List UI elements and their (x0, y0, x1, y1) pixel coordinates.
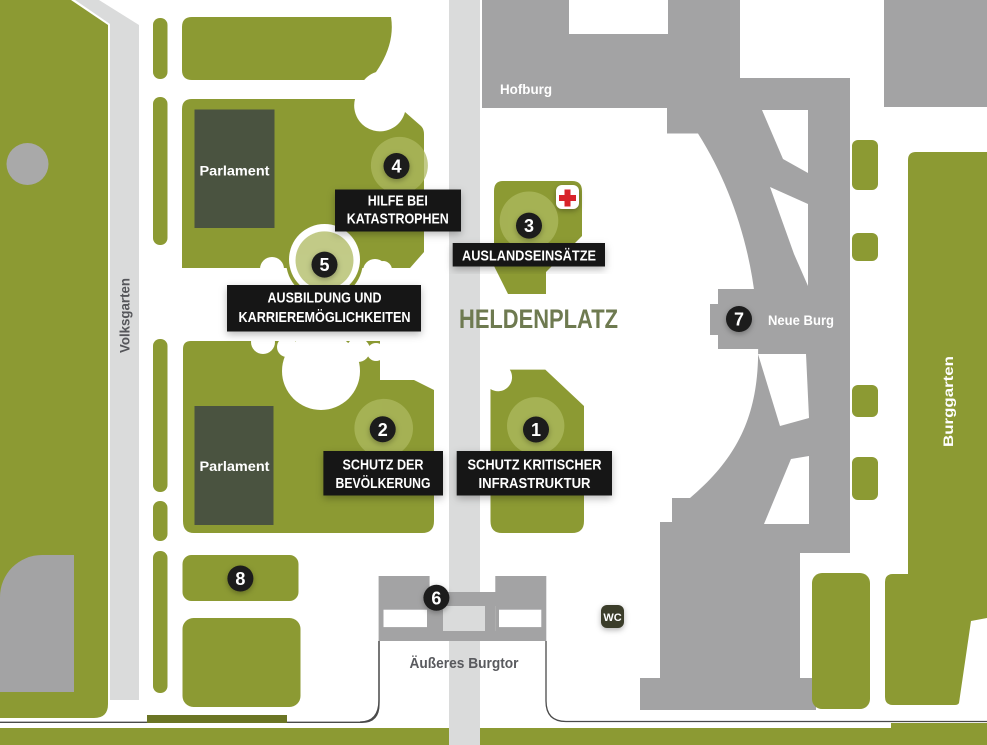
svg-text:4: 4 (391, 157, 401, 177)
svg-text:3: 3 (524, 216, 534, 236)
svg-text:HILFE BEI: HILFE BEI (368, 194, 428, 210)
svg-text:SCHUTZ KRITISCHER: SCHUTZ KRITISCHER (468, 458, 602, 474)
svg-text:INFRASTRUKTUR: INFRASTRUKTUR (479, 476, 591, 492)
svg-text:2: 2 (378, 420, 388, 440)
svg-text:KARRIEREMÖGLICHKEITEN: KARRIEREMÖGLICHKEITEN (239, 309, 411, 326)
svg-text:8: 8 (235, 569, 245, 589)
svg-text:Volksgarten: Volksgarten (118, 278, 133, 353)
svg-text:KATASTROPHEN: KATASTROPHEN (347, 212, 449, 228)
svg-text:Parlament: Parlament (200, 164, 271, 179)
svg-text:Burggarten: Burggarten (941, 356, 956, 447)
svg-text:Hofburg: Hofburg (500, 81, 552, 97)
svg-text:Neue Burg: Neue Burg (768, 312, 834, 328)
svg-text:BEVÖLKERUNG: BEVÖLKERUNG (336, 475, 431, 492)
svg-text:HELDENPLATZ: HELDENPLATZ (459, 304, 618, 334)
svg-text:Äußeres Burgtor: Äußeres Burgtor (410, 655, 519, 672)
svg-text:Parlament: Parlament (200, 459, 271, 474)
svg-text:7: 7 (734, 310, 744, 330)
svg-text:SCHUTZ DER: SCHUTZ DER (343, 458, 424, 474)
svg-text:WC: WC (603, 612, 621, 624)
svg-text:5: 5 (319, 255, 329, 275)
svg-text:1: 1 (531, 420, 541, 440)
svg-text:AUSLANDSEINSÄTZE: AUSLANDSEINSÄTZE (462, 248, 596, 265)
svg-text:AUSBILDUNG UND: AUSBILDUNG UND (268, 291, 382, 307)
svg-text:6: 6 (431, 588, 441, 608)
